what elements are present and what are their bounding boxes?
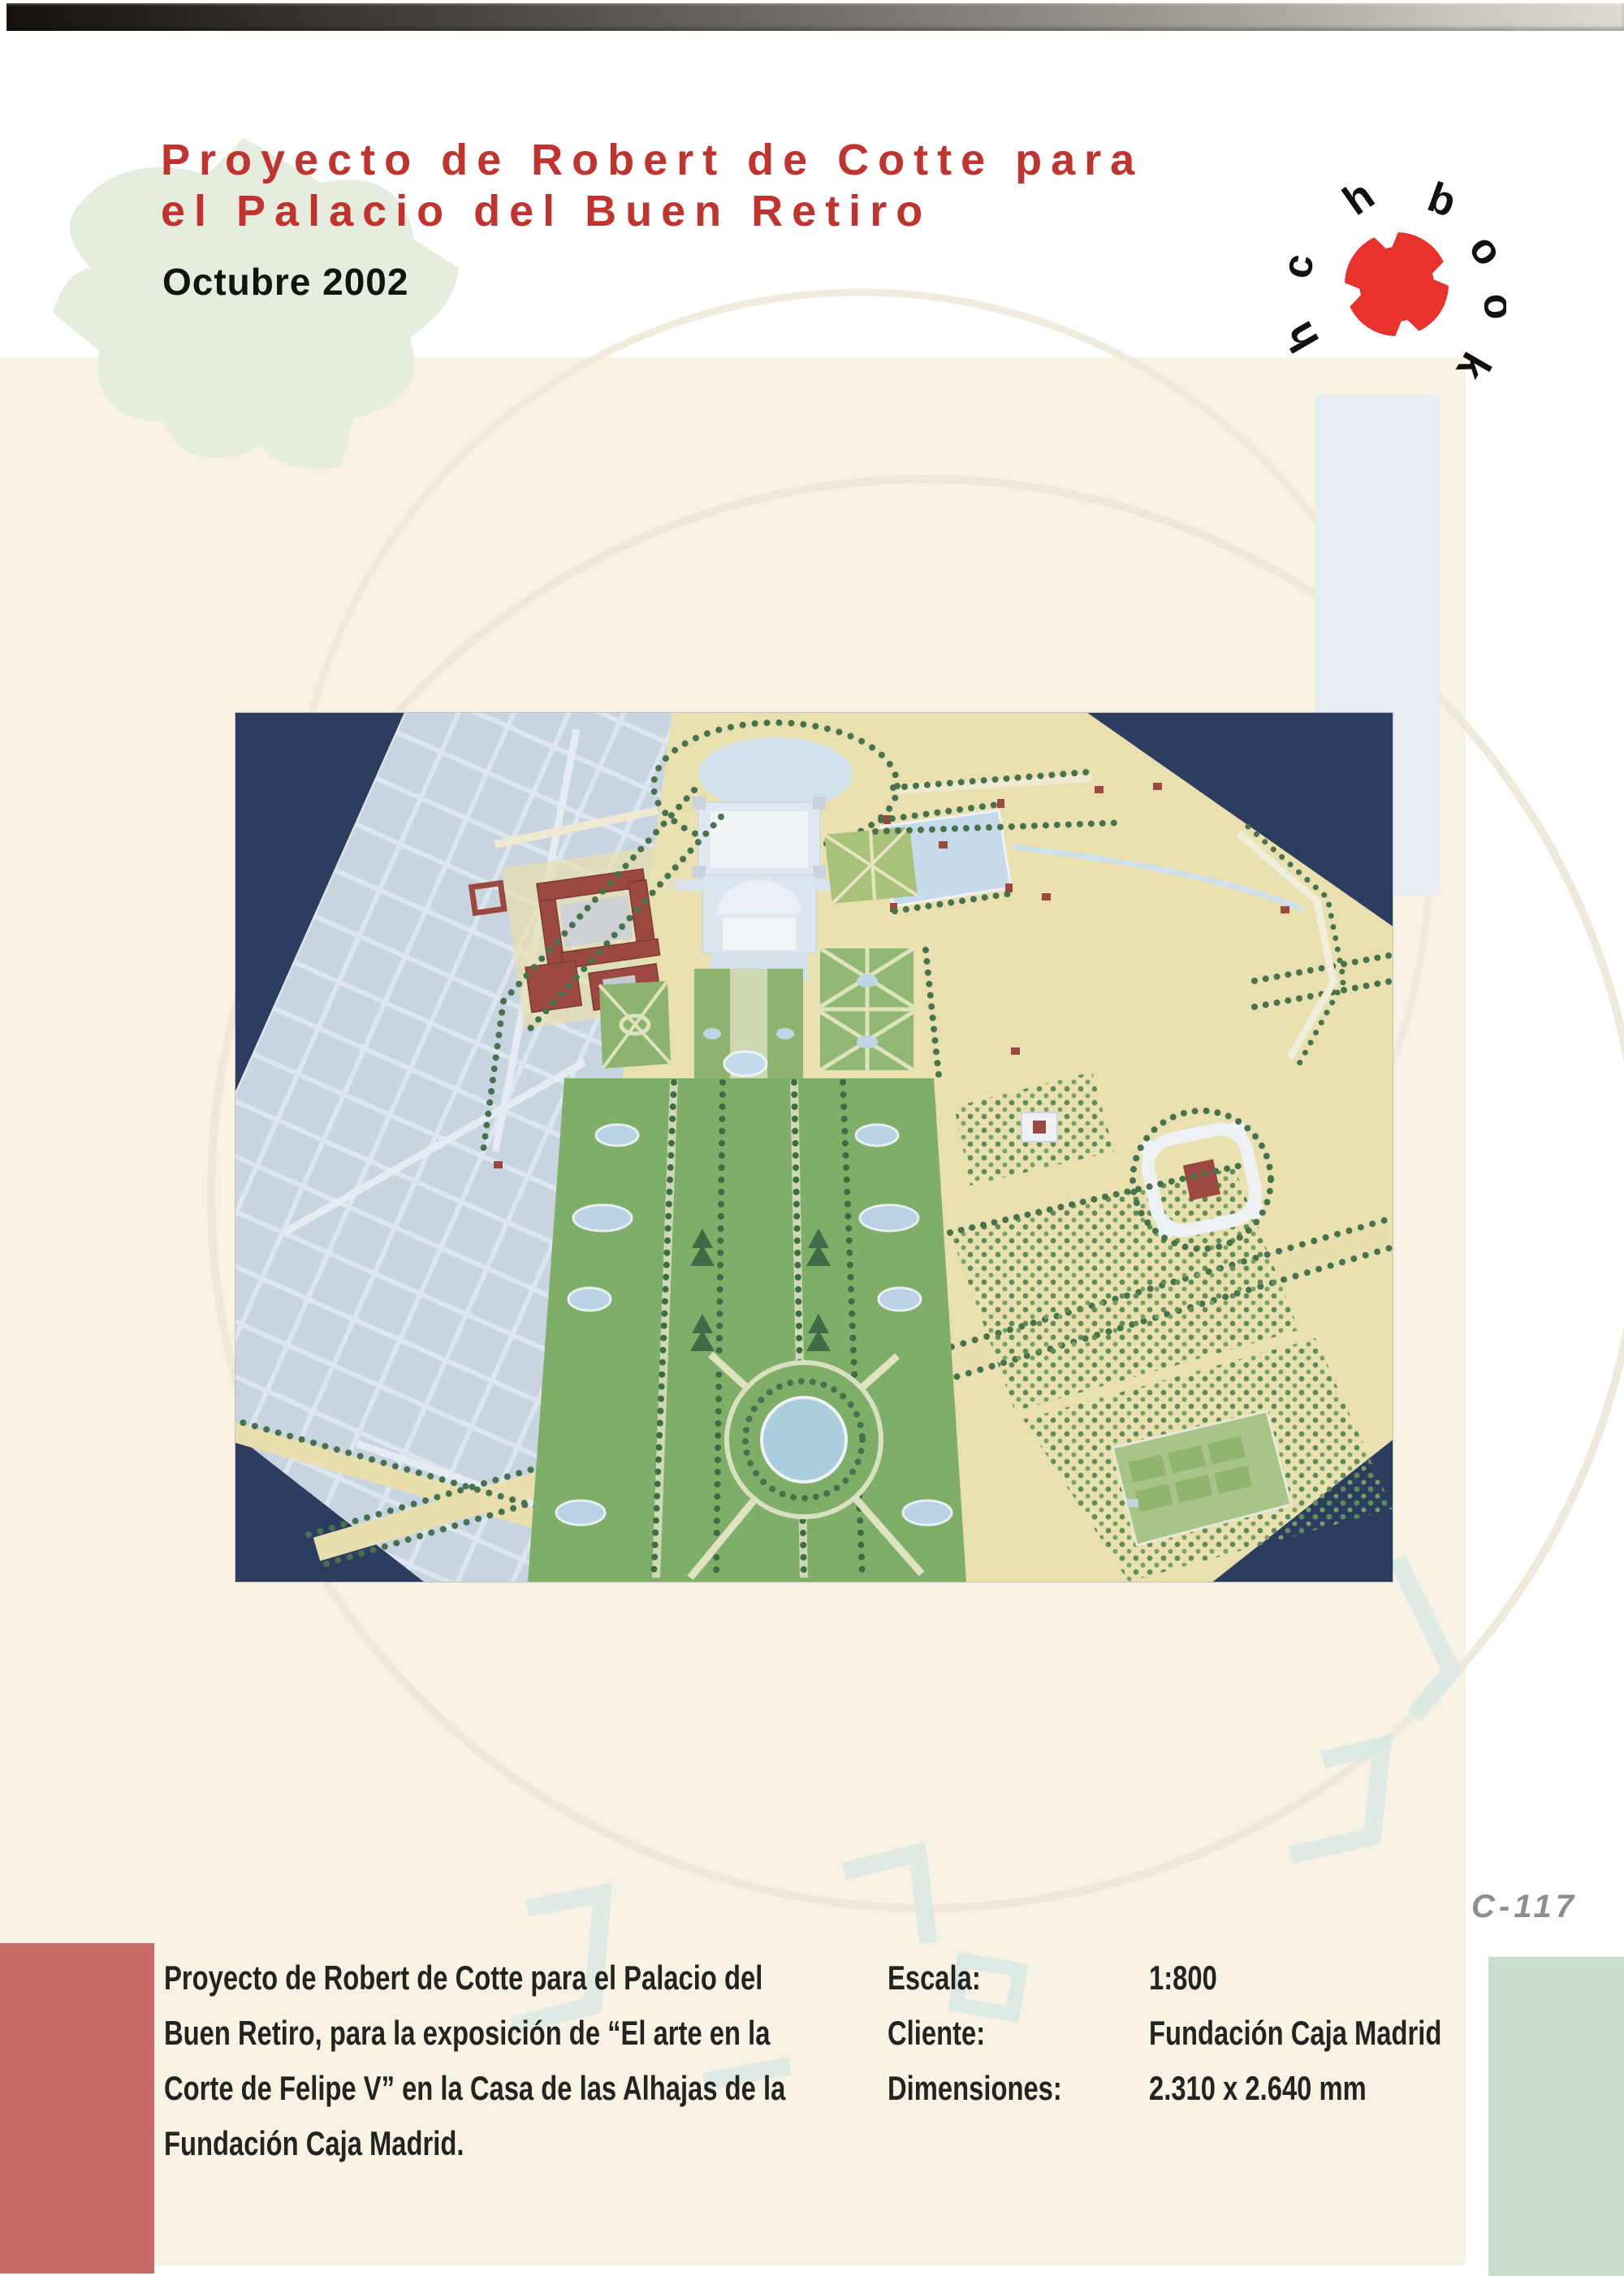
- svg-text:c: c: [1287, 251, 1324, 283]
- spec-label-cliente: Cliente:: [888, 2006, 1062, 2061]
- bottom-right-green-block: [1488, 1957, 1624, 2276]
- spec-value-escala: 1:800: [1149, 1950, 1441, 2006]
- spec-values: 1:800 Fundación Caja Madrid 2.310 x 2.64…: [1149, 1950, 1441, 2116]
- description-line: Proyecto de Robert de Cotte para el Pala…: [164, 1950, 785, 2006]
- svg-text:b: b: [1422, 175, 1462, 227]
- top-gradient-bar: [6, 3, 1624, 31]
- sheet-code: C-117: [1471, 1889, 1578, 1925]
- page-title-line1: Proyecto de Robert de Cotte para: [161, 135, 1143, 186]
- spec-label-dimensiones: Dimensiones:: [888, 2061, 1062, 2116]
- spec-value-dimensiones: 2.310 x 2.640 mm: [1149, 2061, 1441, 2116]
- spec-value-cliente: Fundación Caja Madrid: [1149, 2006, 1441, 2061]
- model-photo: [235, 713, 1393, 1582]
- date-label: Octubre 2002: [162, 260, 408, 304]
- logo-mark-icon: [1323, 210, 1471, 359]
- description-line: Buen Retiro, para la exposición de “El a…: [164, 2006, 785, 2061]
- model-photo-illustration: [235, 713, 1393, 1582]
- spec-labels: Escala: Cliente: Dimensiones:: [888, 1950, 1062, 2116]
- svg-text:o: o: [1459, 227, 1506, 274]
- svg-text:o: o: [1474, 292, 1506, 322]
- svg-text:h: h: [1335, 175, 1383, 225]
- project-description: Proyecto de Robert de Cotte para el Pala…: [164, 1950, 785, 2171]
- description-line: Corte de Felipe V” en la Casa de las Alh…: [164, 2061, 785, 2116]
- description-line: Fundación Caja Madrid.: [164, 2116, 785, 2171]
- hch-book-logo: h c h b o o k: [1287, 175, 1506, 394]
- page-title-line2: el Palacio del Buen Retiro: [161, 186, 1143, 237]
- small-compound: [1021, 1112, 1057, 1142]
- portfolio-page: Proyecto de Robert de Cotte para el Pala…: [0, 0, 1624, 2276]
- svg-text:h: h: [1287, 313, 1328, 360]
- page-title: Proyecto de Robert de Cotte para el Pala…: [161, 135, 1143, 237]
- spec-label-escala: Escala:: [888, 1950, 1062, 2006]
- svg-text:k: k: [1447, 344, 1500, 388]
- bottom-left-red-block: [0, 1943, 154, 2274]
